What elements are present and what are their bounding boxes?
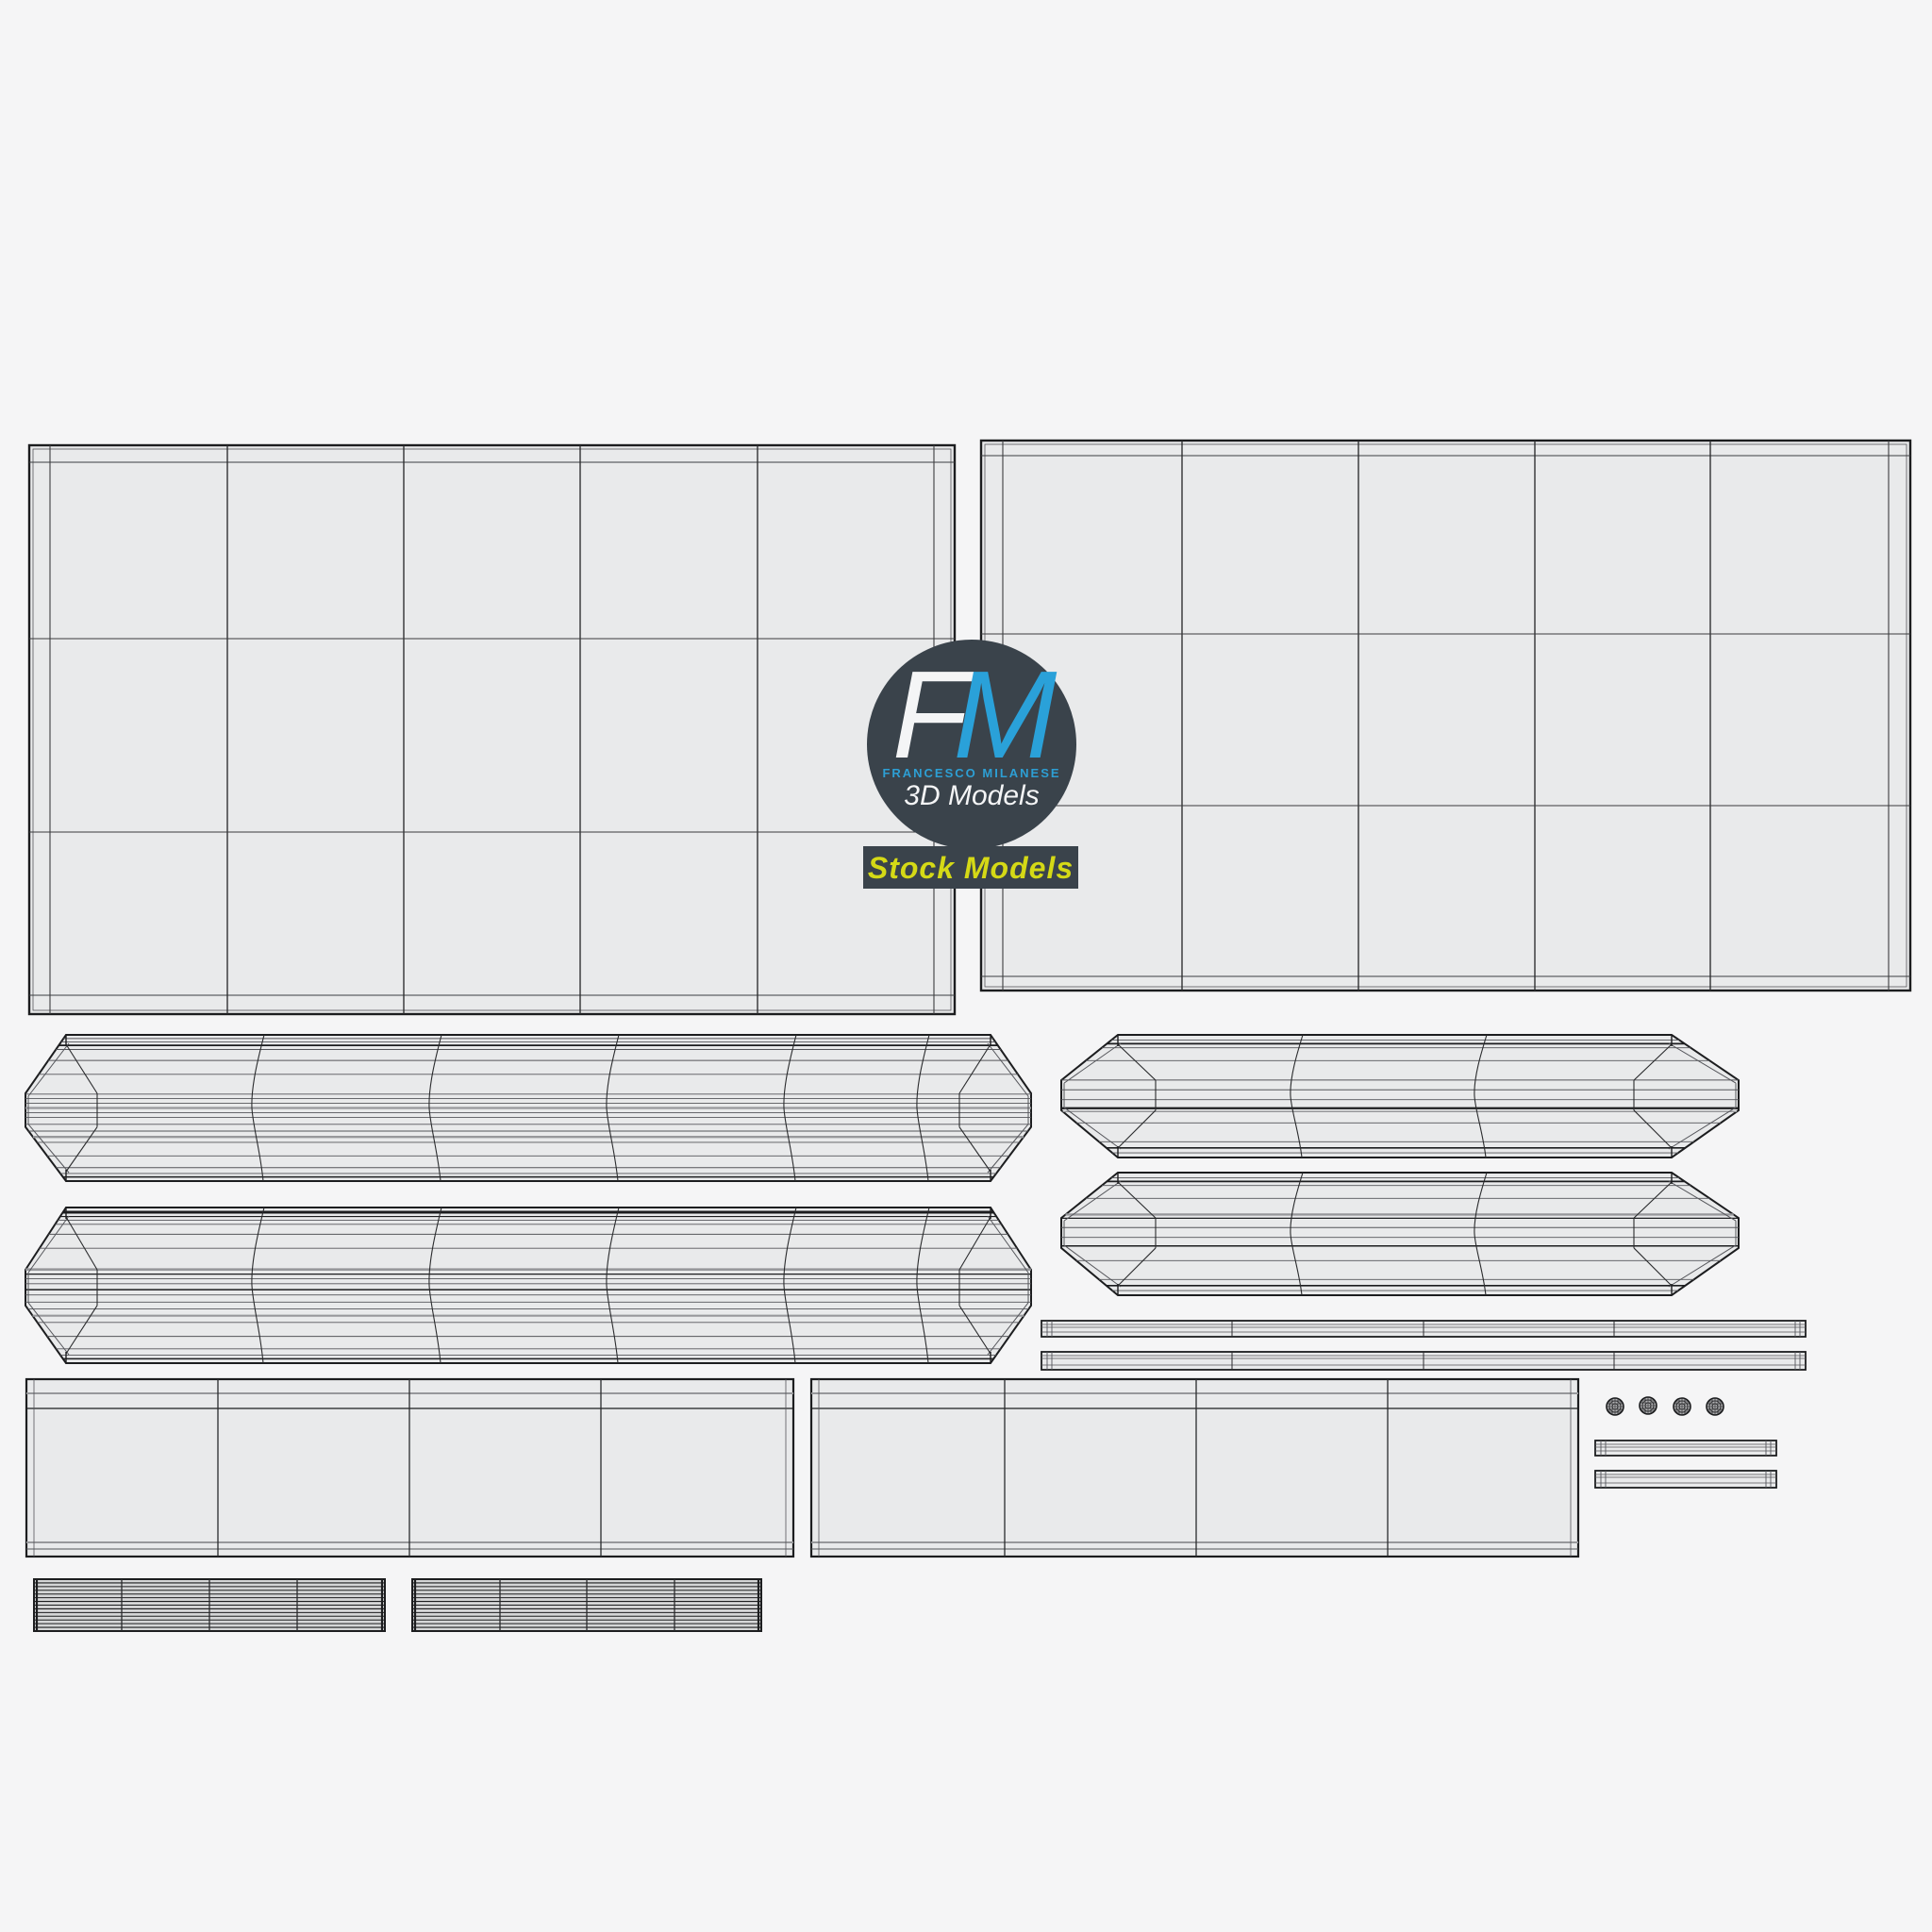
uv-wireframe-canvas bbox=[0, 0, 1932, 1932]
uv-strip-right bbox=[412, 1579, 761, 1631]
logo-subtitle: FRANCESCO MILANESE bbox=[858, 767, 1086, 779]
uv-plank-short-1 bbox=[1595, 1441, 1776, 1456]
uv-knob-3 bbox=[1674, 1398, 1690, 1415]
logo-banner-label: Stock Models bbox=[868, 853, 1074, 883]
logo-monogram: FM bbox=[867, 653, 1076, 777]
uv-board-bottom-left bbox=[26, 1379, 793, 1557]
uv-strip-left bbox=[34, 1579, 385, 1631]
uv-panel-top-left bbox=[29, 445, 955, 1014]
uv-molding-left-1 bbox=[25, 1035, 1031, 1181]
uv-plank-long-2 bbox=[1041, 1352, 1806, 1370]
uv-layout-sheet: FM FRANCESCO MILANESE 3D Models Stock Mo… bbox=[0, 0, 1932, 1932]
logo-banner: Stock Models bbox=[863, 846, 1078, 889]
uv-knob-4 bbox=[1707, 1398, 1724, 1415]
uv-knob-2 bbox=[1640, 1397, 1657, 1414]
uv-molding-right-1 bbox=[1061, 1035, 1739, 1158]
uv-molding-left-2 bbox=[25, 1207, 1031, 1363]
logo-monogram-m: M bbox=[953, 645, 1051, 784]
uv-board-bottom-center bbox=[811, 1379, 1578, 1557]
uv-knob-1 bbox=[1607, 1398, 1624, 1415]
uv-molding-right-2 bbox=[1061, 1173, 1739, 1295]
uv-plank-short-2 bbox=[1595, 1471, 1776, 1488]
uv-plank-long-1 bbox=[1041, 1321, 1806, 1337]
uv-panel-top-right bbox=[981, 441, 1910, 991]
logo-tagline: 3D Models bbox=[867, 782, 1076, 810]
